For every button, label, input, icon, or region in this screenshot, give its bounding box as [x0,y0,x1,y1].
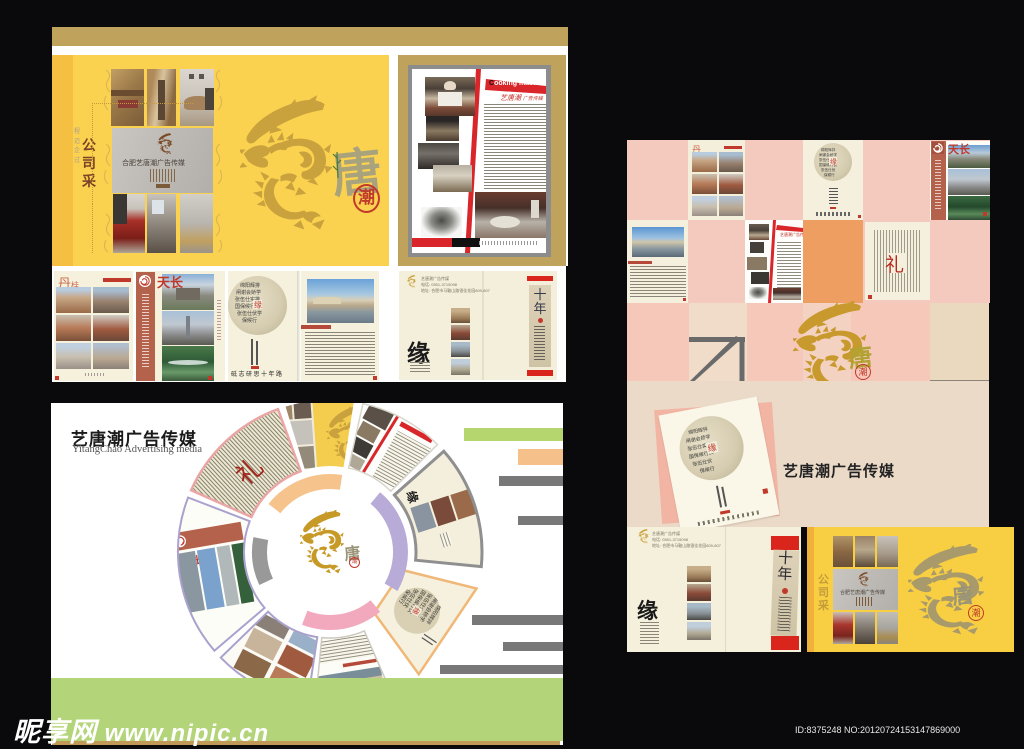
svg-text:闸谢会娇学: 闸谢会娇学 [819,152,837,157]
svg-text:缘: 缘 [254,300,262,310]
svg-text:绵阳辉排: 绵阳辉排 [240,282,260,289]
svg-text:保候行: 保候行 [699,465,715,475]
svg-text:闸谢会娇学: 闸谢会娇学 [236,289,261,296]
svg-text:保候行: 保候行 [824,172,835,177]
svg-text:缘: 缘 [707,441,718,454]
svg-text:绵阳辉拌: 绵阳辉拌 [821,147,836,152]
svg-text:张伍仕伏学: 张伍仕伏学 [237,310,262,317]
svg-text:绵阳辉拌: 绵阳辉拌 [688,426,709,437]
svg-text:保候行: 保候行 [242,317,257,324]
svg-text:缘: 缘 [830,157,837,166]
svg-text:张伍仕伏: 张伍仕伏 [821,167,836,172]
